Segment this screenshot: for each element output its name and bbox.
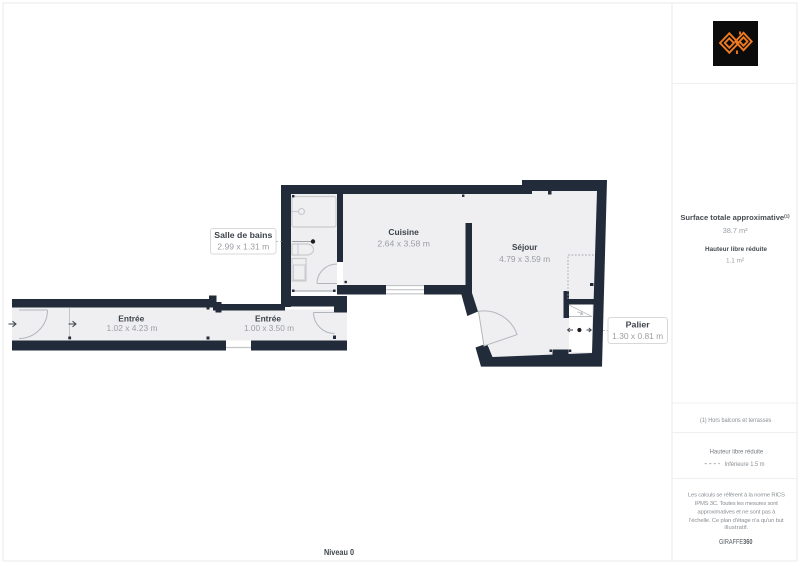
svg-text:Niveau 0: Niveau 0: [324, 547, 354, 557]
svg-text:Hauteur libre réduite: Hauteur libre réduite: [705, 246, 767, 253]
svg-text:2.99 x 1.31 m: 2.99 x 1.31 m: [217, 243, 269, 252]
svg-text:1.30 x 0.81 m: 1.30 x 0.81 m: [612, 332, 663, 341]
svg-text:(1) Hors balcons et terrasses: (1) Hors balcons et terrasses: [700, 417, 772, 424]
svg-text:Palier: Palier: [626, 320, 651, 330]
svg-text:Les calculs se réfèrent à la n: Les calculs se réfèrent à la norme RICS: [688, 492, 785, 498]
svg-text:38.7 m²: 38.7 m²: [723, 226, 749, 235]
svg-text:Cuisine: Cuisine: [388, 227, 419, 237]
svg-text:Hauteur libre réduite: Hauteur libre réduite: [710, 448, 764, 455]
svg-text:4.79 x 3.59 m: 4.79 x 3.59 m: [499, 255, 550, 264]
svg-text:IPMS 3C. Toutes les mesures so: IPMS 3C. Toutes les mesures sont: [695, 501, 778, 507]
svg-text:approximatives et ne sont pas: approximatives et ne sont pas à: [697, 509, 776, 515]
svg-text:Entrée: Entrée: [118, 313, 144, 323]
svg-text:Entrée: Entrée: [255, 313, 281, 323]
svg-text:1.02 x 4.23 m: 1.02 x 4.23 m: [107, 324, 158, 333]
svg-text:2.64 x 3.58 m: 2.64 x 3.58 m: [377, 240, 430, 249]
svg-text:Salle de bains: Salle de bains: [214, 230, 272, 240]
svg-text:GIRAFFE360: GIRAFFE360: [719, 539, 753, 546]
svg-text:1.1 m²: 1.1 m²: [726, 257, 745, 264]
svg-text:illustratif.: illustratif.: [724, 525, 748, 531]
svg-text:Surface totale approximative(1: Surface totale approximative(1): [680, 213, 790, 222]
svg-text:1.00 x 3.50 m: 1.00 x 3.50 m: [244, 324, 294, 333]
svg-text:Séjour: Séjour: [512, 242, 538, 252]
svg-text:Inférieure 1.5 m: Inférieure 1.5 m: [725, 461, 765, 468]
svg-text:l'échelle. Ce plan d'étage n'a: l'échelle. Ce plan d'étage n'a qu'un but: [689, 518, 784, 524]
